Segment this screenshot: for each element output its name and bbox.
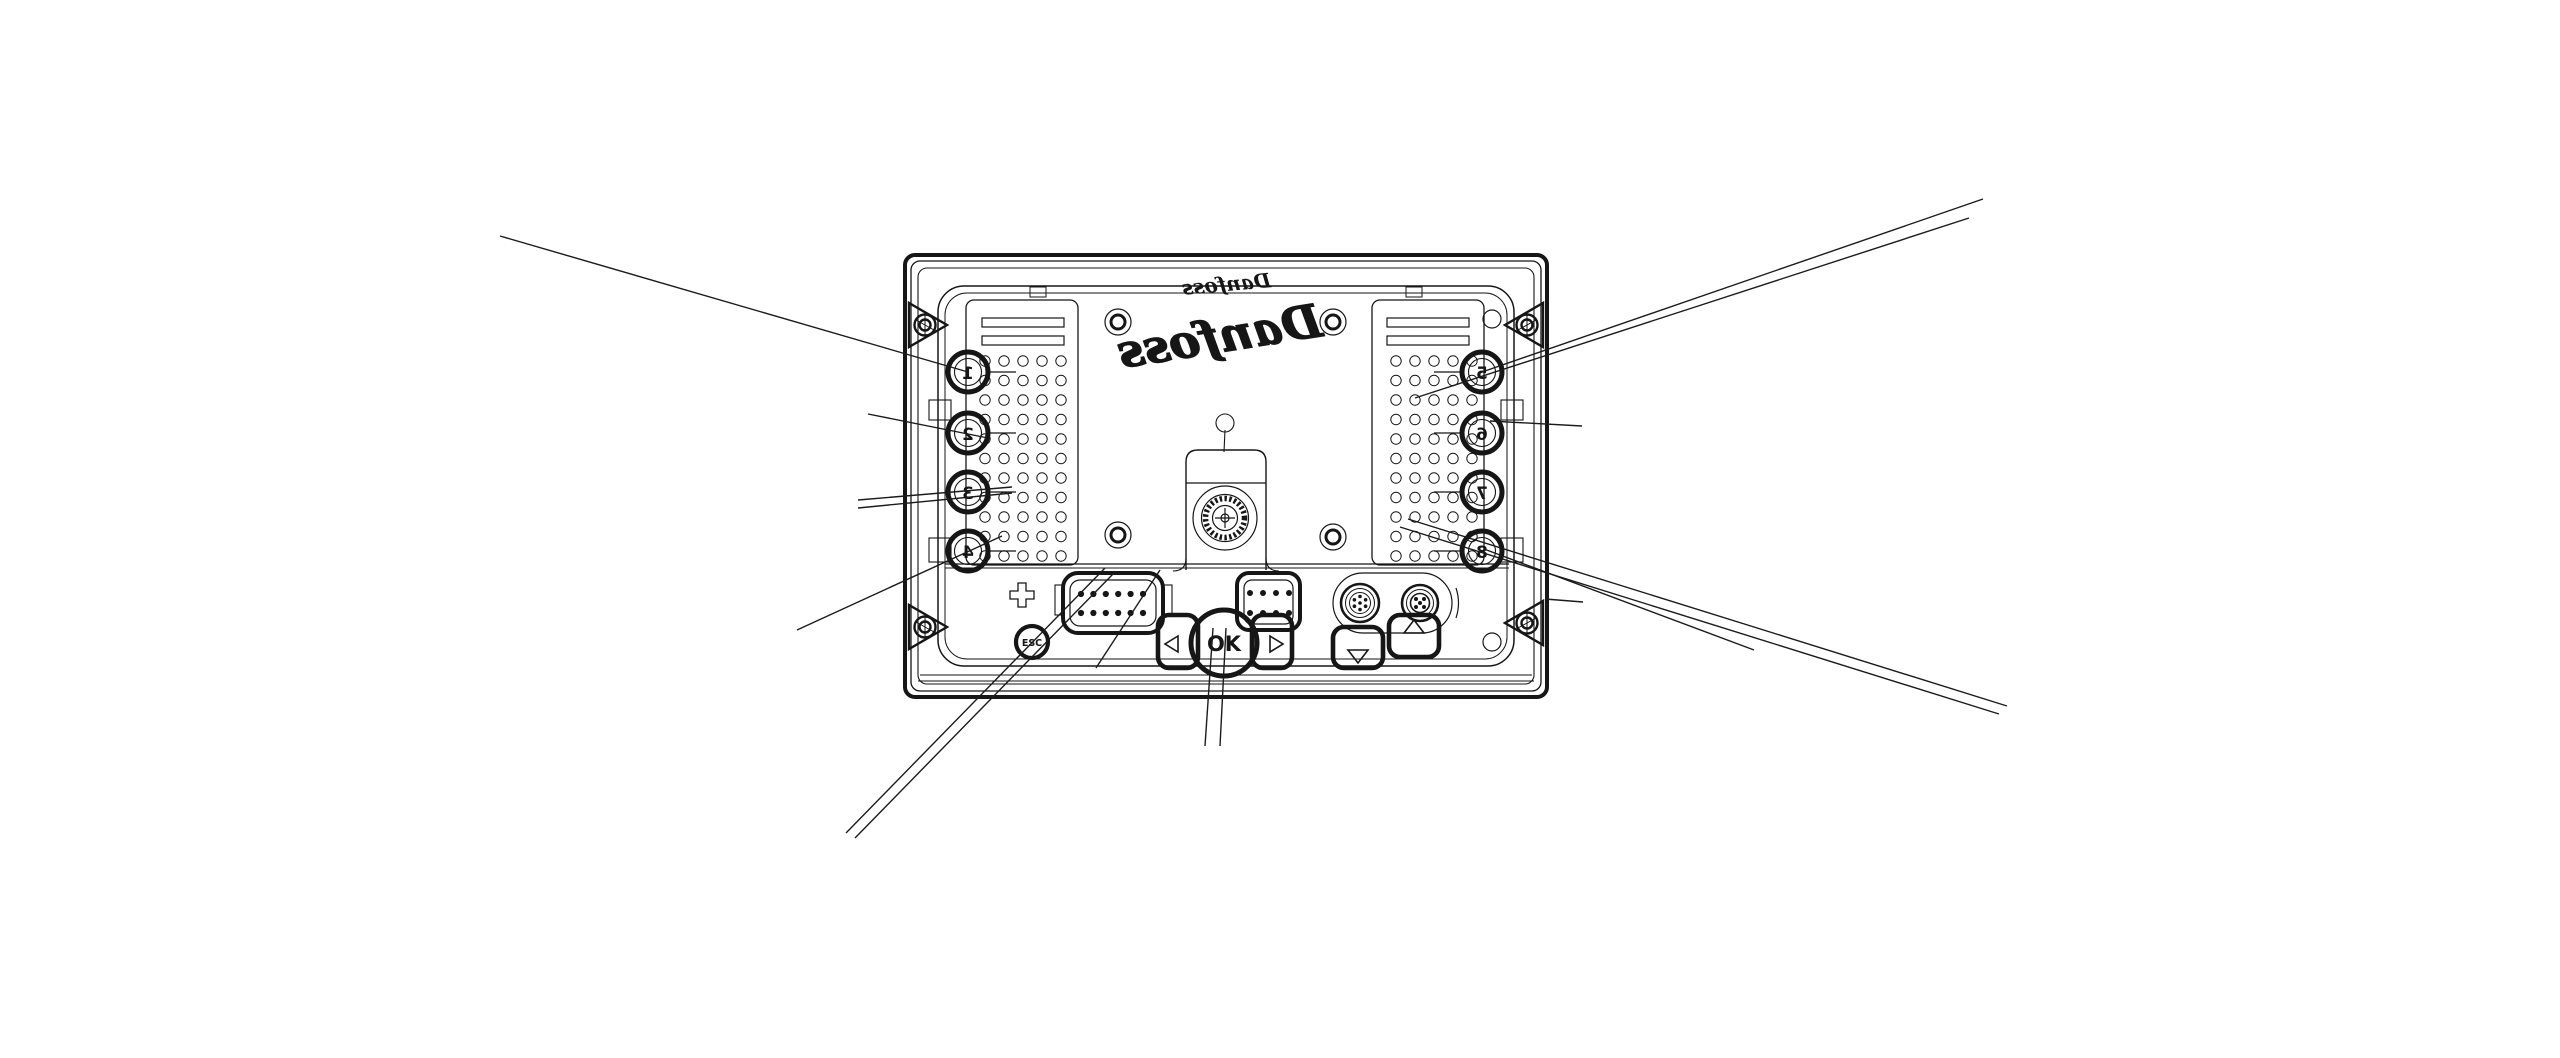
round-7pin-connector [1341,584,1379,622]
leader-line [797,536,1002,630]
key-label: 6 [1476,425,1488,445]
leader-line [855,573,1114,838]
leader-line [500,236,968,372]
key-label: 5 [1476,364,1488,384]
left-vent-panel [966,300,1078,567]
key-label: 3 [962,484,974,504]
leader-line [1482,199,1983,372]
rear-view-technical-drawing: Danfoss Danfoss 1 [0,0,2560,1058]
connector-pins [1078,591,1146,616]
screw-icon [1505,601,1543,645]
mounting-pocket [1173,450,1279,571]
rect-8pin-connector [1237,573,1300,630]
plus-bracket-icon [1010,583,1034,607]
up-arrow-key [1389,615,1439,657]
crosshair-marker [1216,414,1234,452]
screw-icon [909,605,947,649]
connector-pins [1247,590,1292,616]
rect-12pin-connector [1055,573,1172,633]
svg-text:Danfoss: Danfoss [1181,268,1273,300]
callout-leader-lines [500,199,2007,838]
left-arrow-icon [1165,636,1178,652]
center-round-connector [1193,486,1257,550]
leader-line [1096,570,1160,668]
leader-line [1400,527,1999,714]
brand-logo-small: Danfoss [1181,268,1273,300]
leader-line [1545,599,1583,602]
leader-line [846,568,1105,833]
right-vent-panel [1372,300,1484,567]
leader-line [1490,421,1582,426]
right-clip-top [1501,400,1523,420]
screw-icon [1505,303,1543,347]
key-label: 1 [962,364,974,384]
vent-holes [977,353,1073,567]
brand-logo-large: Danfoss [1114,293,1327,379]
left-clip-top [929,400,951,420]
svg-text:Danfoss: Danfoss [1114,293,1327,379]
leader-line [1408,519,2007,706]
leader-line [1415,218,1969,398]
screw-icon [909,303,947,347]
key-label: 7 [1476,484,1488,504]
down-arrow-icon [1348,650,1368,663]
technical-drawing-page: Danfoss Danfoss 1 [0,0,2560,1058]
right-arrow-icon [1270,636,1283,652]
